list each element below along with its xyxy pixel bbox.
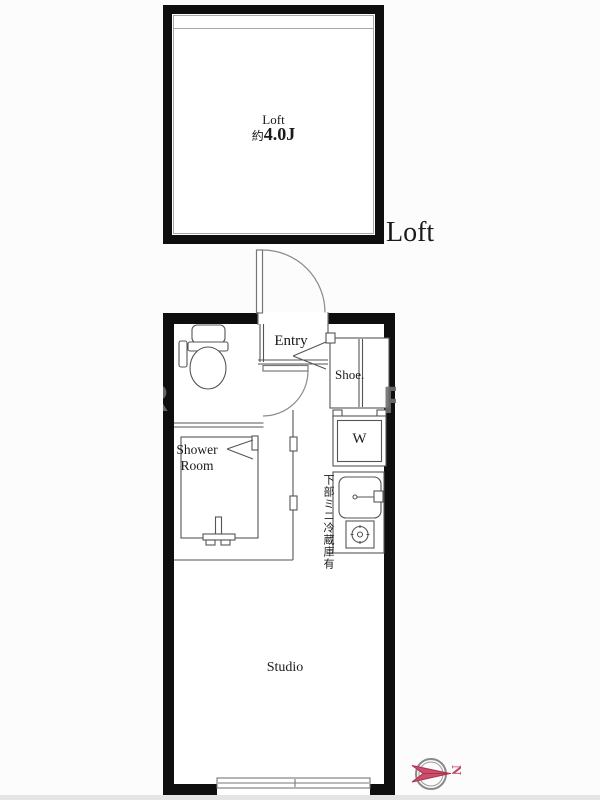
washer-label: W xyxy=(333,431,386,448)
loft-size-value: 4.0J xyxy=(264,124,296,144)
entry-doorway-opening xyxy=(258,312,328,325)
kitchen-fridge-note: 下部ミニ冷蔵庫有 xyxy=(320,474,336,562)
loft-size-prefix: 約 xyxy=(252,129,264,143)
page-bottom-strip xyxy=(0,795,600,800)
compass-icon: N xyxy=(412,759,463,789)
shower-room-label: Shower Room xyxy=(164,442,230,474)
loft-room-label: Loft 約4.0J xyxy=(163,112,384,144)
loft-edge-line xyxy=(173,28,374,29)
floor-plan-page: Loft 約4.0J Loft xyxy=(0,0,600,800)
entry-label: Entry xyxy=(262,333,320,350)
main-unit-outline xyxy=(163,313,395,795)
compass-north-label: N xyxy=(448,765,463,775)
watermark-fragment-left: R xyxy=(163,379,177,421)
studio-label: Studio xyxy=(253,660,317,676)
watermark-fragment-right: R xyxy=(383,381,396,423)
window-opening xyxy=(217,777,370,795)
shoe-cabinet-label: Shoe. xyxy=(335,367,364,383)
loft-section-title: Loft xyxy=(386,218,434,248)
